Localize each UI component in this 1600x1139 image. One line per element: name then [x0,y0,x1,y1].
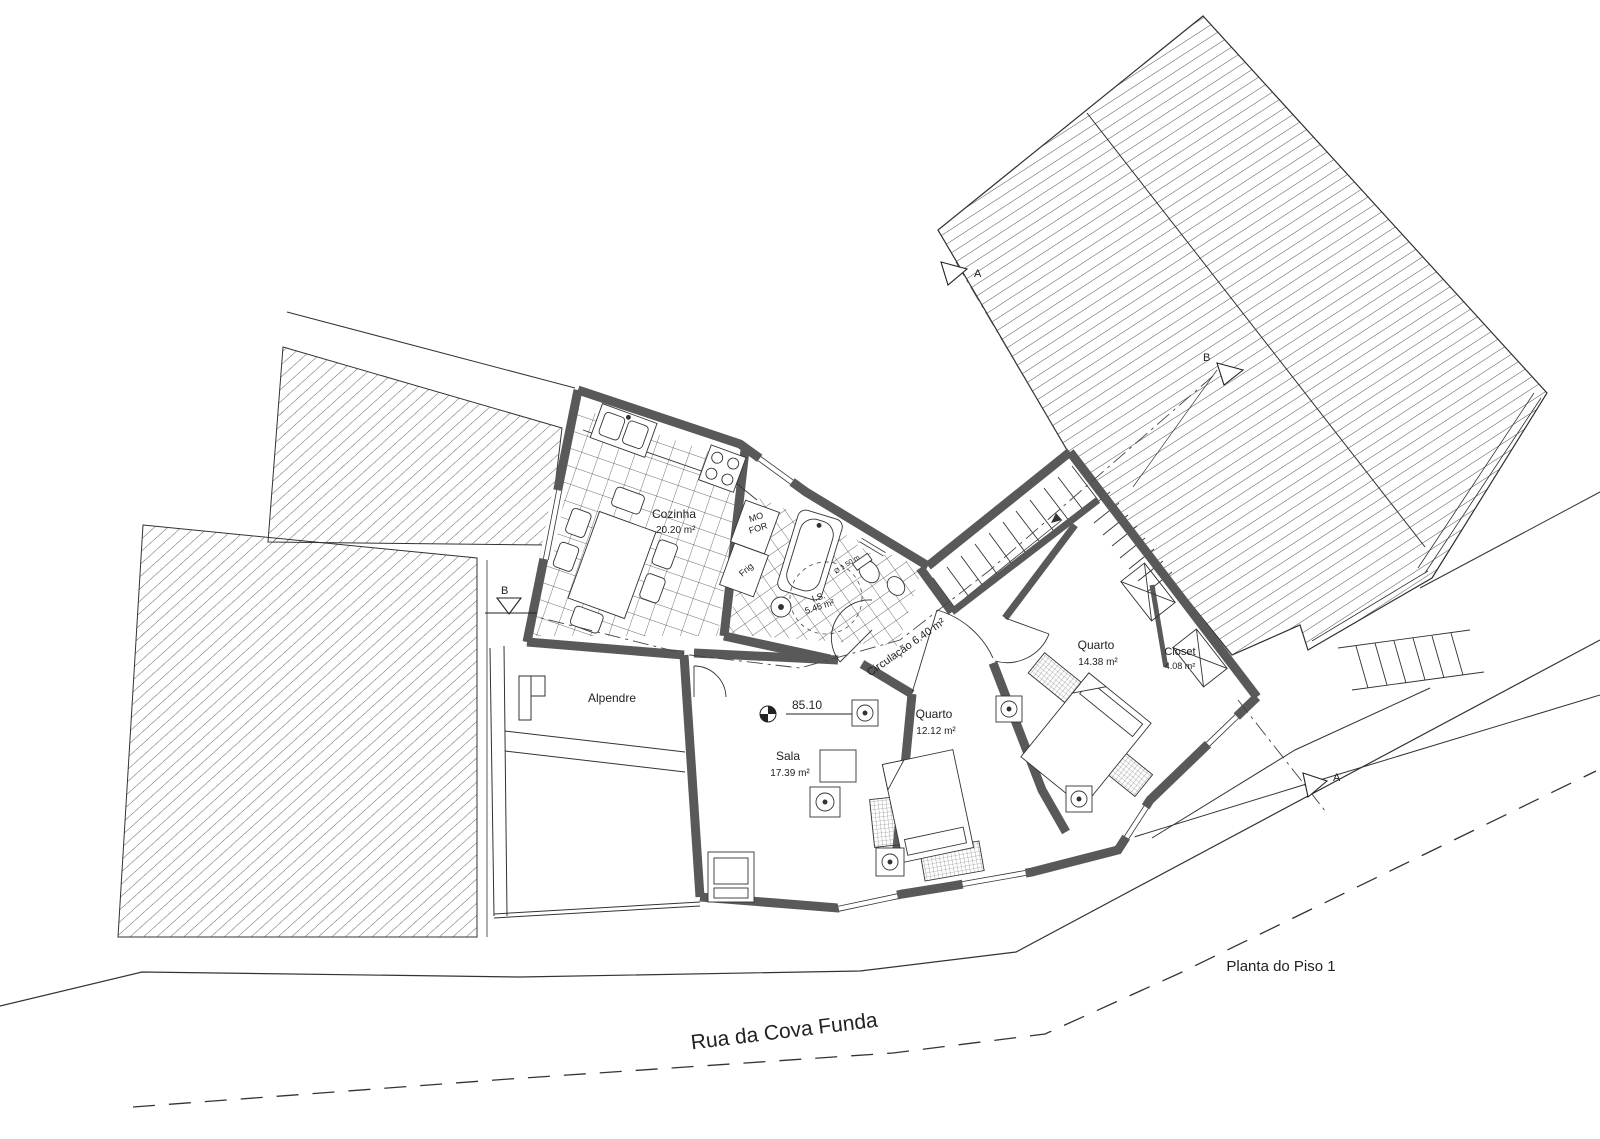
label-quarto2-area: 14.38 m² [1078,657,1118,668]
label-sala-area: 17.39 m² [770,768,810,779]
label-quarto1: Quarto [916,707,953,721]
label-section-b-left: B [501,585,508,597]
label-quarto2: Quarto [1078,638,1115,652]
floor-plan-canvas: Cozinha 20.20 m² I.S. 5.45 m² Ø 1.50 m C… [0,0,1600,1139]
label-cozinha: Cozinha [652,507,696,521]
label-section-a-right: A [1333,772,1341,784]
label-quarto1-area: 12.12 m² [916,726,956,737]
plan-title: Planta do Piso 1 [1226,958,1335,975]
label-level: 85.10 [792,698,822,712]
label-alpendre: Alpendre [588,691,636,705]
label-section-b-top: B [1203,352,1210,364]
label-section-a-top: A [974,268,982,280]
label-cozinha-area: 20.20 m² [656,525,696,536]
armchair [820,750,856,782]
label-closet: Closet [1164,646,1195,658]
label-sala: Sala [776,749,800,763]
label-closet-area: 4.08 m² [1165,661,1196,671]
neighbour-roof-lower-left [118,525,477,937]
